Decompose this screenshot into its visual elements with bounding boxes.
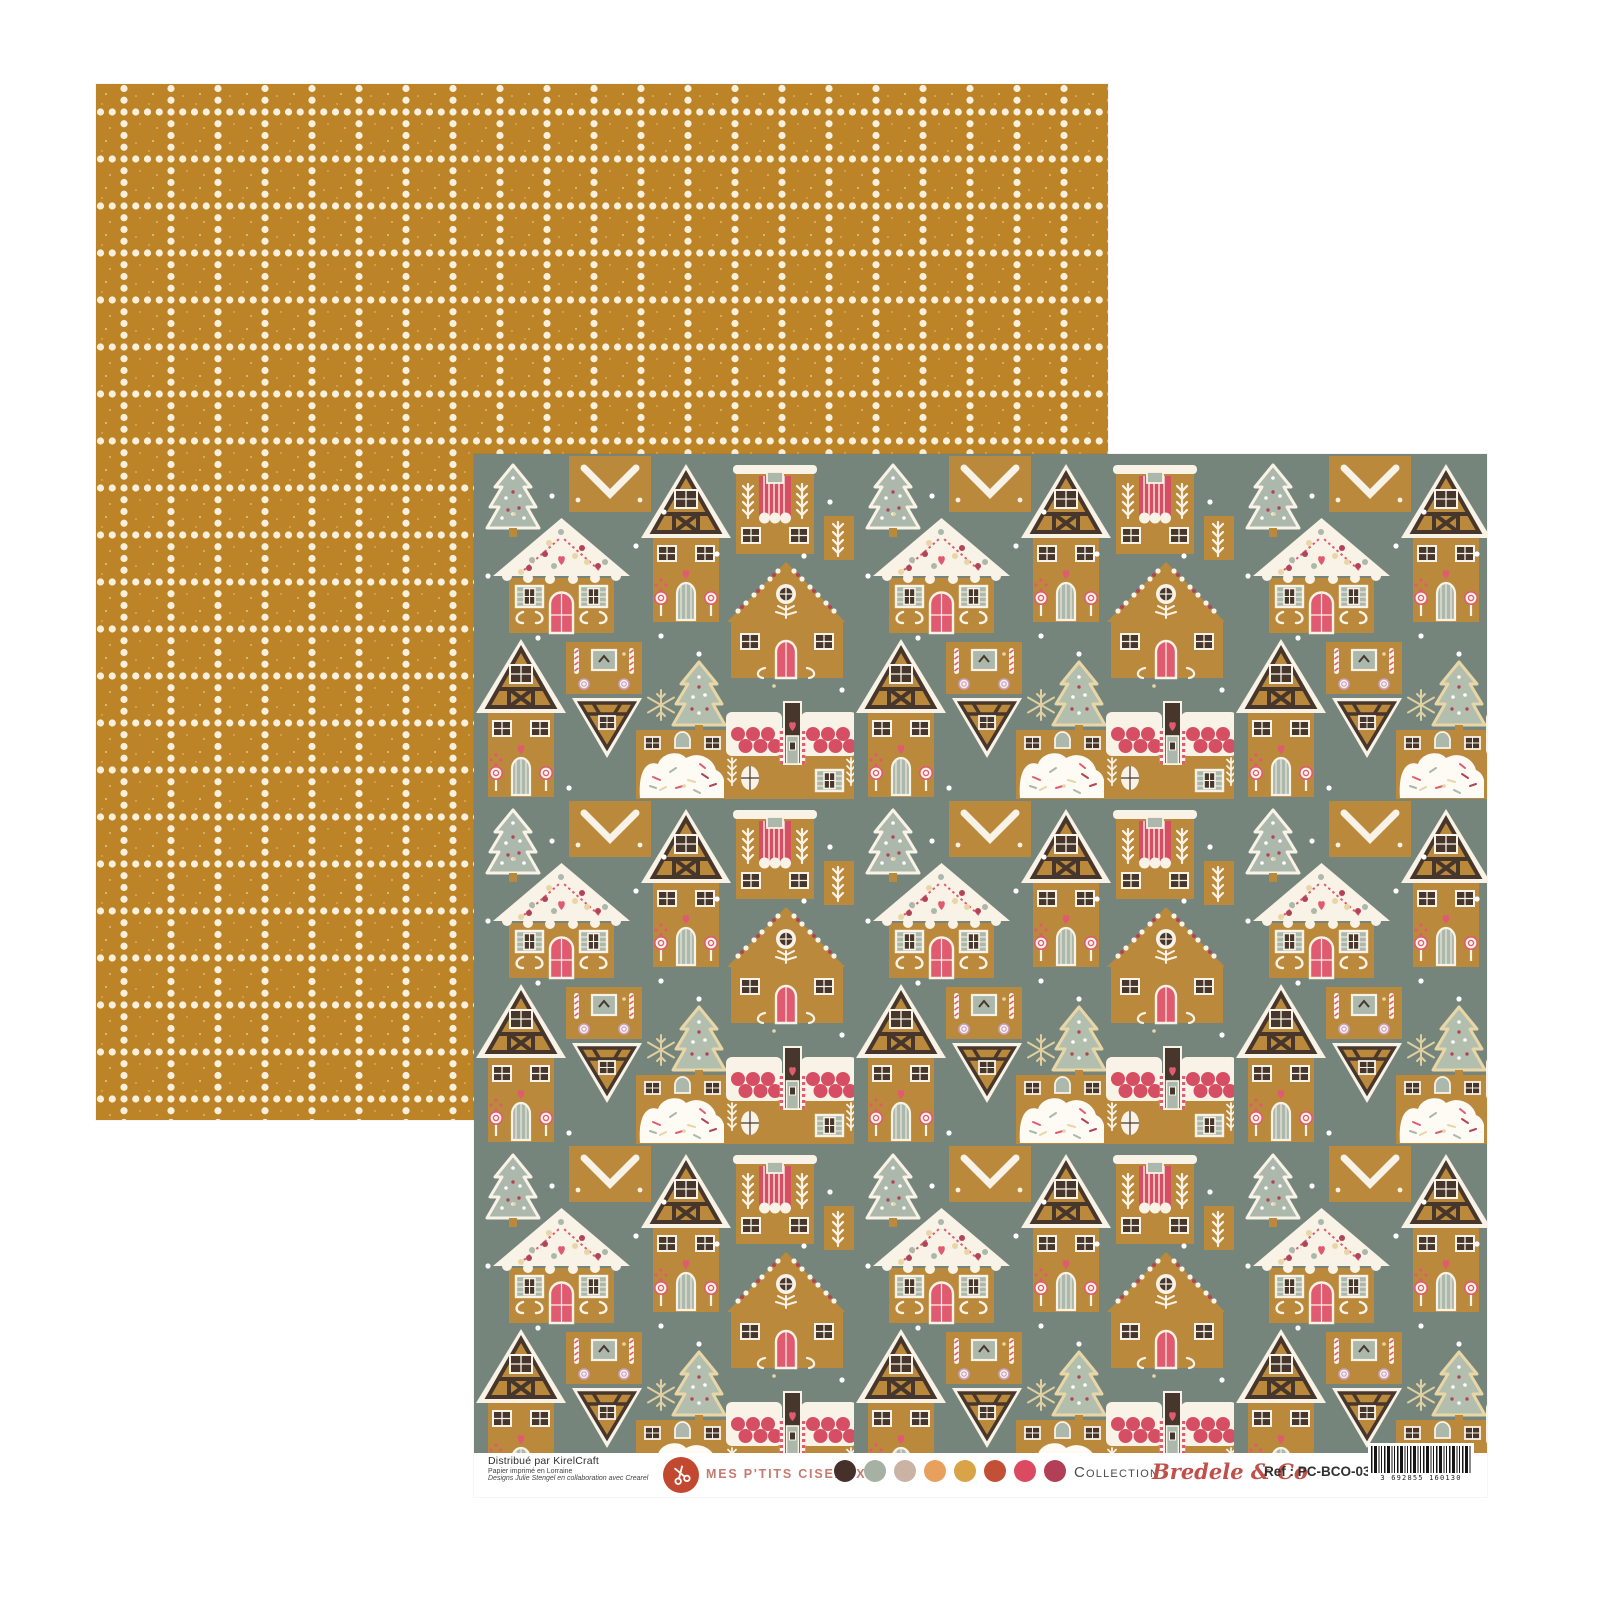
palette-swatch [864,1460,886,1482]
printed-in-line: Papier imprimé en Lorraine [488,1468,648,1475]
front-paper-gingerbread: Distribué par KirelCraft Papier imprimé … [474,454,1487,1497]
footer-strip: Distribué par KirelCraft Papier imprimé … [474,1453,1487,1497]
barcode: 3 692855 160130 [1368,1443,1474,1483]
color-palette [834,1460,1066,1482]
distributor-line: Distribué par KirelCraft [488,1455,648,1467]
palette-swatch [894,1460,916,1482]
barcode-bars [1371,1446,1471,1473]
barcode-digits: 3 692855 160130 [1371,1474,1471,1482]
palette-swatch [1044,1460,1066,1482]
gingerbread-pattern [474,454,1487,1453]
palette-swatch [954,1460,976,1482]
scissors-logo [663,1457,699,1493]
collection-label: Collection [1074,1464,1159,1481]
palette-swatch [834,1460,856,1482]
palette-swatch [1014,1460,1036,1482]
distributor-credits: Distribué par KirelCraft Papier imprimé … [488,1455,648,1482]
scissors-icon [667,1461,695,1489]
palette-swatch [924,1460,946,1482]
reference-code: Ref : PC-BCO-03 [1264,1464,1371,1479]
palette-swatch [984,1460,1006,1482]
designer-line: Designs Julie Stengel en collaboration a… [488,1475,648,1482]
